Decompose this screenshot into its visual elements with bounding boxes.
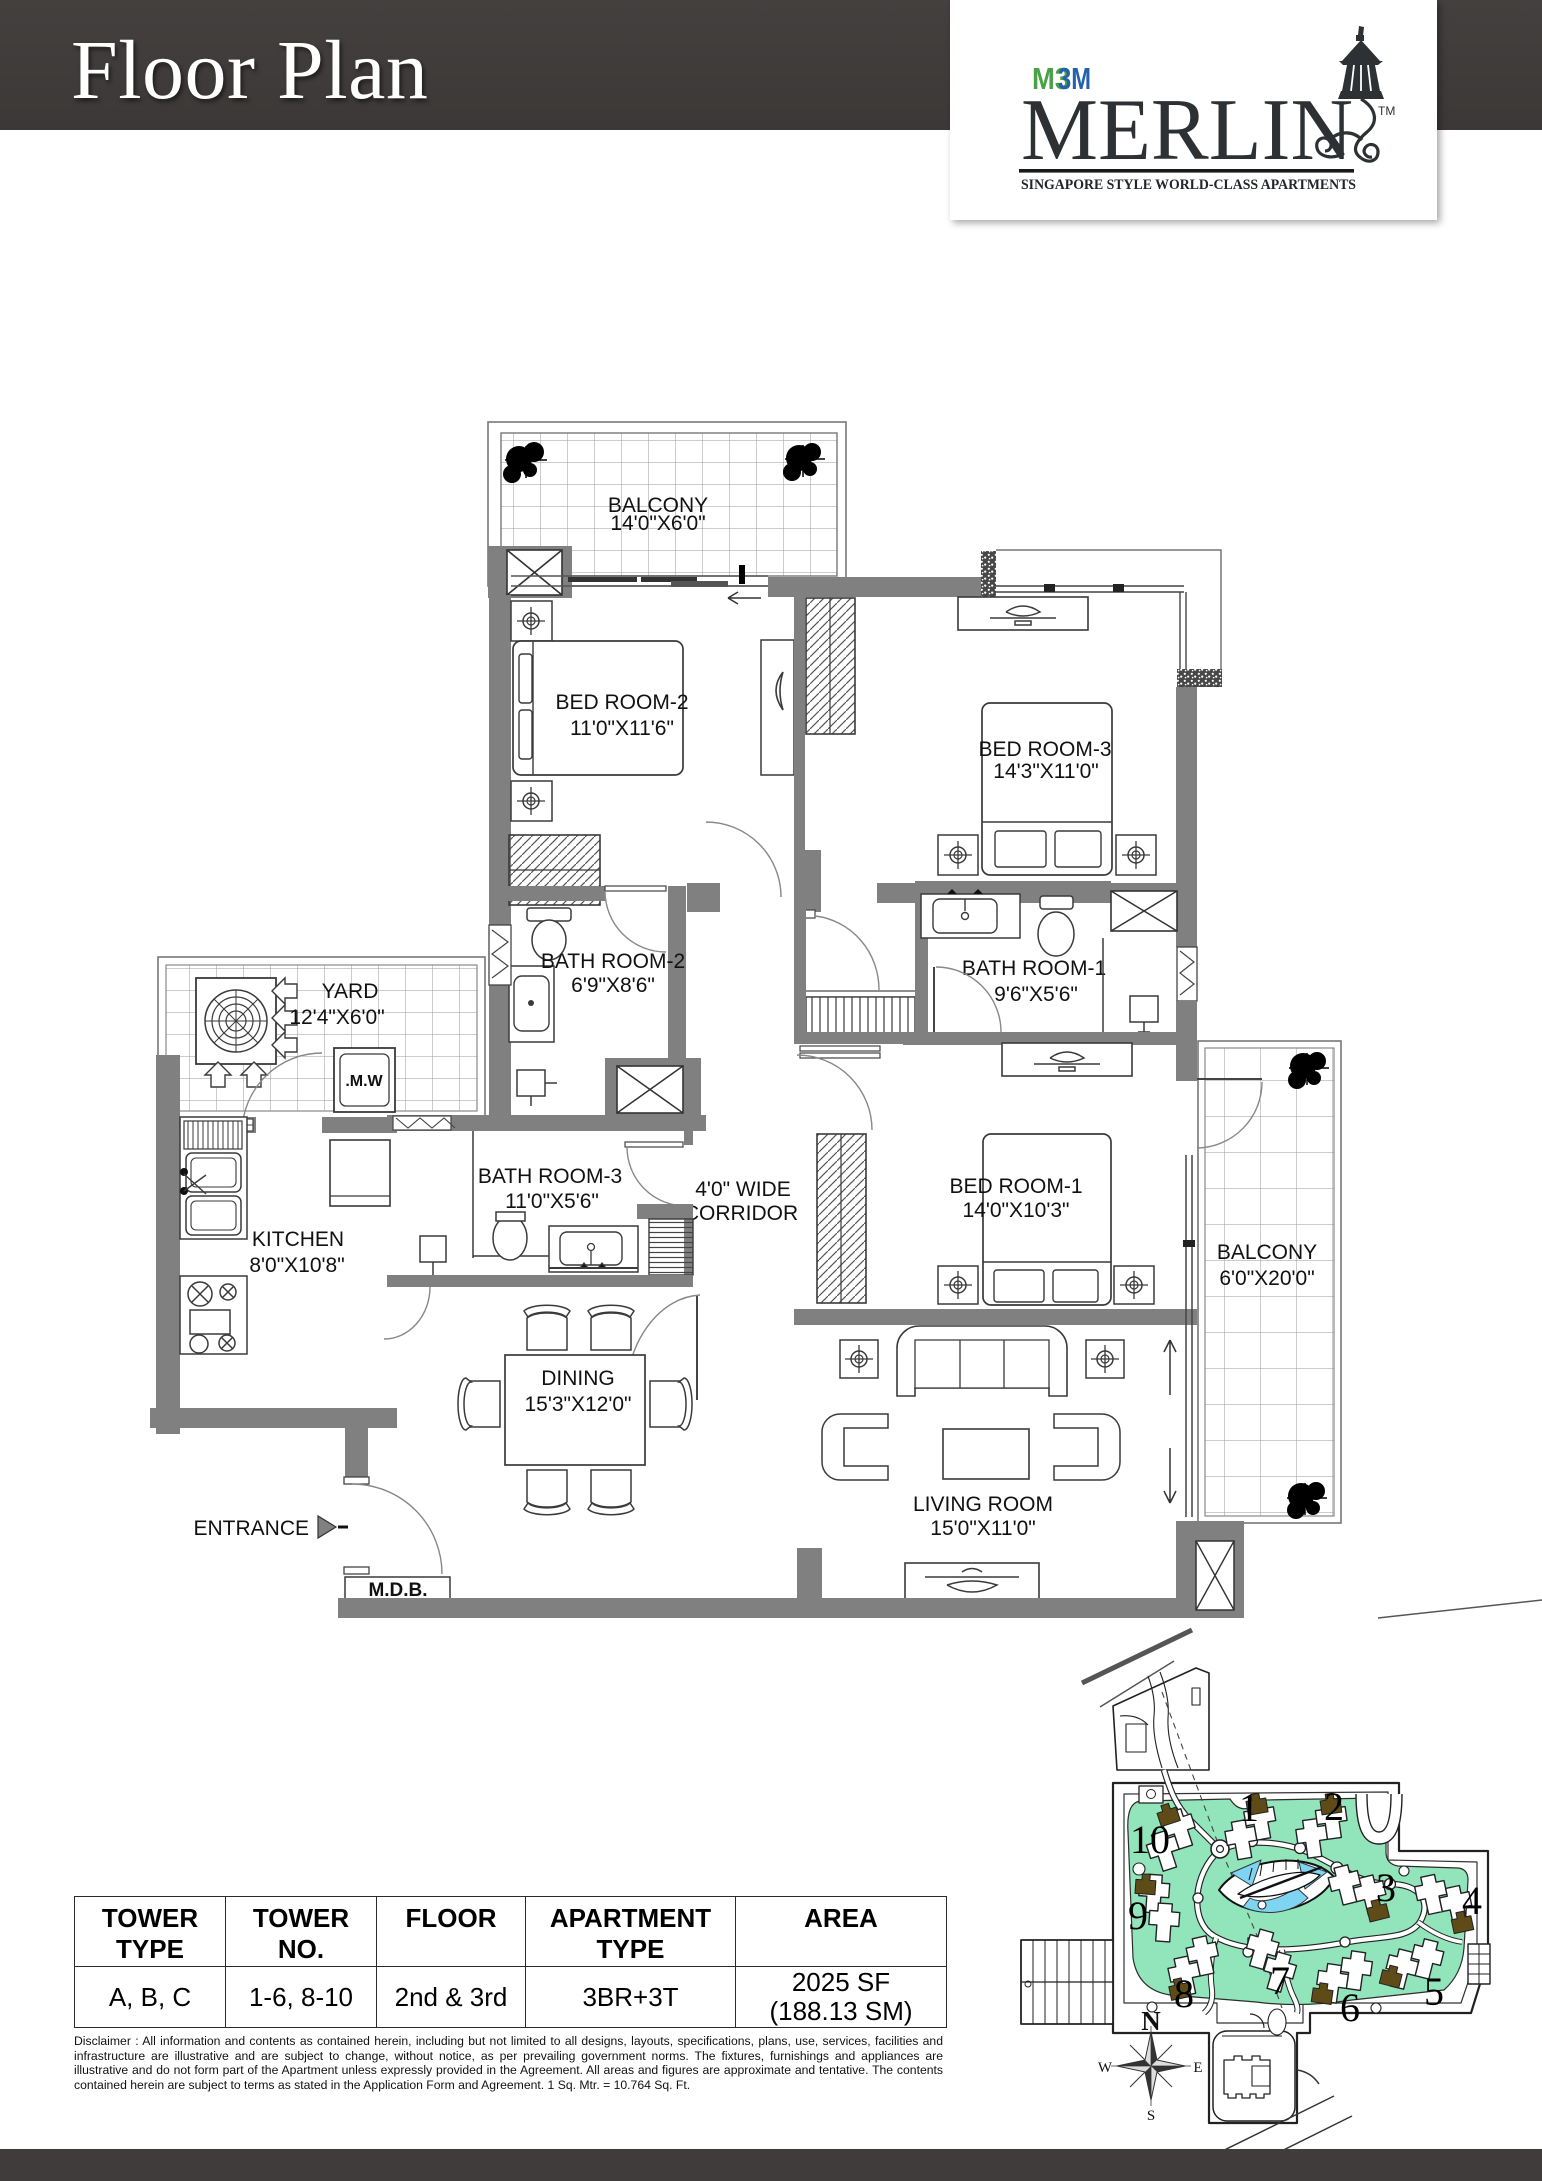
svg-text:7: 7 bbox=[1270, 1958, 1290, 2003]
svg-text:BED ROOM-1: BED ROOM-1 bbox=[949, 1175, 1082, 1198]
svg-text:2: 2 bbox=[1324, 1784, 1344, 1829]
svg-text:11'0"X11'6": 11'0"X11'6" bbox=[570, 717, 674, 740]
svg-text:5: 5 bbox=[1424, 1969, 1444, 2014]
svg-text:N: N bbox=[1141, 2006, 1161, 2036]
svg-text:BATH ROOM-3: BATH ROOM-3 bbox=[478, 1165, 622, 1188]
svg-text:CORRIDOR: CORRIDOR bbox=[684, 1202, 798, 1225]
svg-text:.M.W: .M.W bbox=[345, 1073, 383, 1090]
svg-text:6'9"X8'6": 6'9"X8'6" bbox=[571, 974, 655, 997]
svg-text:BATH ROOM-1: BATH ROOM-1 bbox=[962, 957, 1106, 980]
svg-text:3: 3 bbox=[1376, 1865, 1396, 1910]
svg-text:4'0" WIDE: 4'0" WIDE bbox=[695, 1178, 790, 1201]
svg-text:KITCHEN: KITCHEN bbox=[252, 1228, 344, 1251]
svg-text:BED ROOM-3: BED ROOM-3 bbox=[978, 738, 1111, 761]
svg-text:11'0"X5'6": 11'0"X5'6" bbox=[505, 1190, 599, 1213]
svg-text:14'0"X10'3": 14'0"X10'3" bbox=[962, 1199, 1069, 1222]
svg-text:4: 4 bbox=[1462, 1878, 1482, 1923]
svg-text:8: 8 bbox=[1174, 1971, 1194, 2016]
svg-text:9: 9 bbox=[1128, 1893, 1148, 1938]
svg-text:W: W bbox=[1098, 2060, 1113, 2076]
svg-text:14'3"X11'0": 14'3"X11'0" bbox=[993, 760, 1098, 783]
svg-text:BALCONY: BALCONY bbox=[1217, 1241, 1317, 1264]
svg-text:DINING: DINING bbox=[541, 1367, 615, 1390]
svg-text:BED ROOM-2: BED ROOM-2 bbox=[555, 691, 688, 714]
svg-text:E: E bbox=[1193, 2060, 1202, 2076]
svg-text:S: S bbox=[1147, 2108, 1155, 2124]
svg-text:1: 1 bbox=[1239, 1785, 1259, 1830]
svg-text:15'3"X12'0": 15'3"X12'0" bbox=[524, 1393, 631, 1416]
svg-text:YARD: YARD bbox=[322, 980, 379, 1003]
svg-text:10: 10 bbox=[1130, 1817, 1170, 1862]
svg-text:ENTRANCE: ENTRANCE bbox=[193, 1517, 309, 1540]
svg-text:8'0"X10'8": 8'0"X10'8" bbox=[249, 1254, 344, 1277]
svg-text:14'0"X6'0": 14'0"X6'0" bbox=[610, 512, 705, 535]
svg-text:LIVING ROOM: LIVING ROOM bbox=[913, 1493, 1053, 1516]
svg-text:M.D.B.: M.D.B. bbox=[368, 1580, 427, 1601]
svg-text:9'6"X5'6": 9'6"X5'6" bbox=[994, 983, 1078, 1006]
svg-text:6'0"X20'0": 6'0"X20'0" bbox=[1219, 1267, 1314, 1290]
svg-text:BATH ROOM-2: BATH ROOM-2 bbox=[541, 950, 685, 973]
svg-text:15'0"X11'0": 15'0"X11'0" bbox=[930, 1517, 1035, 1540]
svg-text:6: 6 bbox=[1340, 1985, 1360, 2030]
svg-text:12'4"X6'0": 12'4"X6'0" bbox=[289, 1006, 384, 1029]
